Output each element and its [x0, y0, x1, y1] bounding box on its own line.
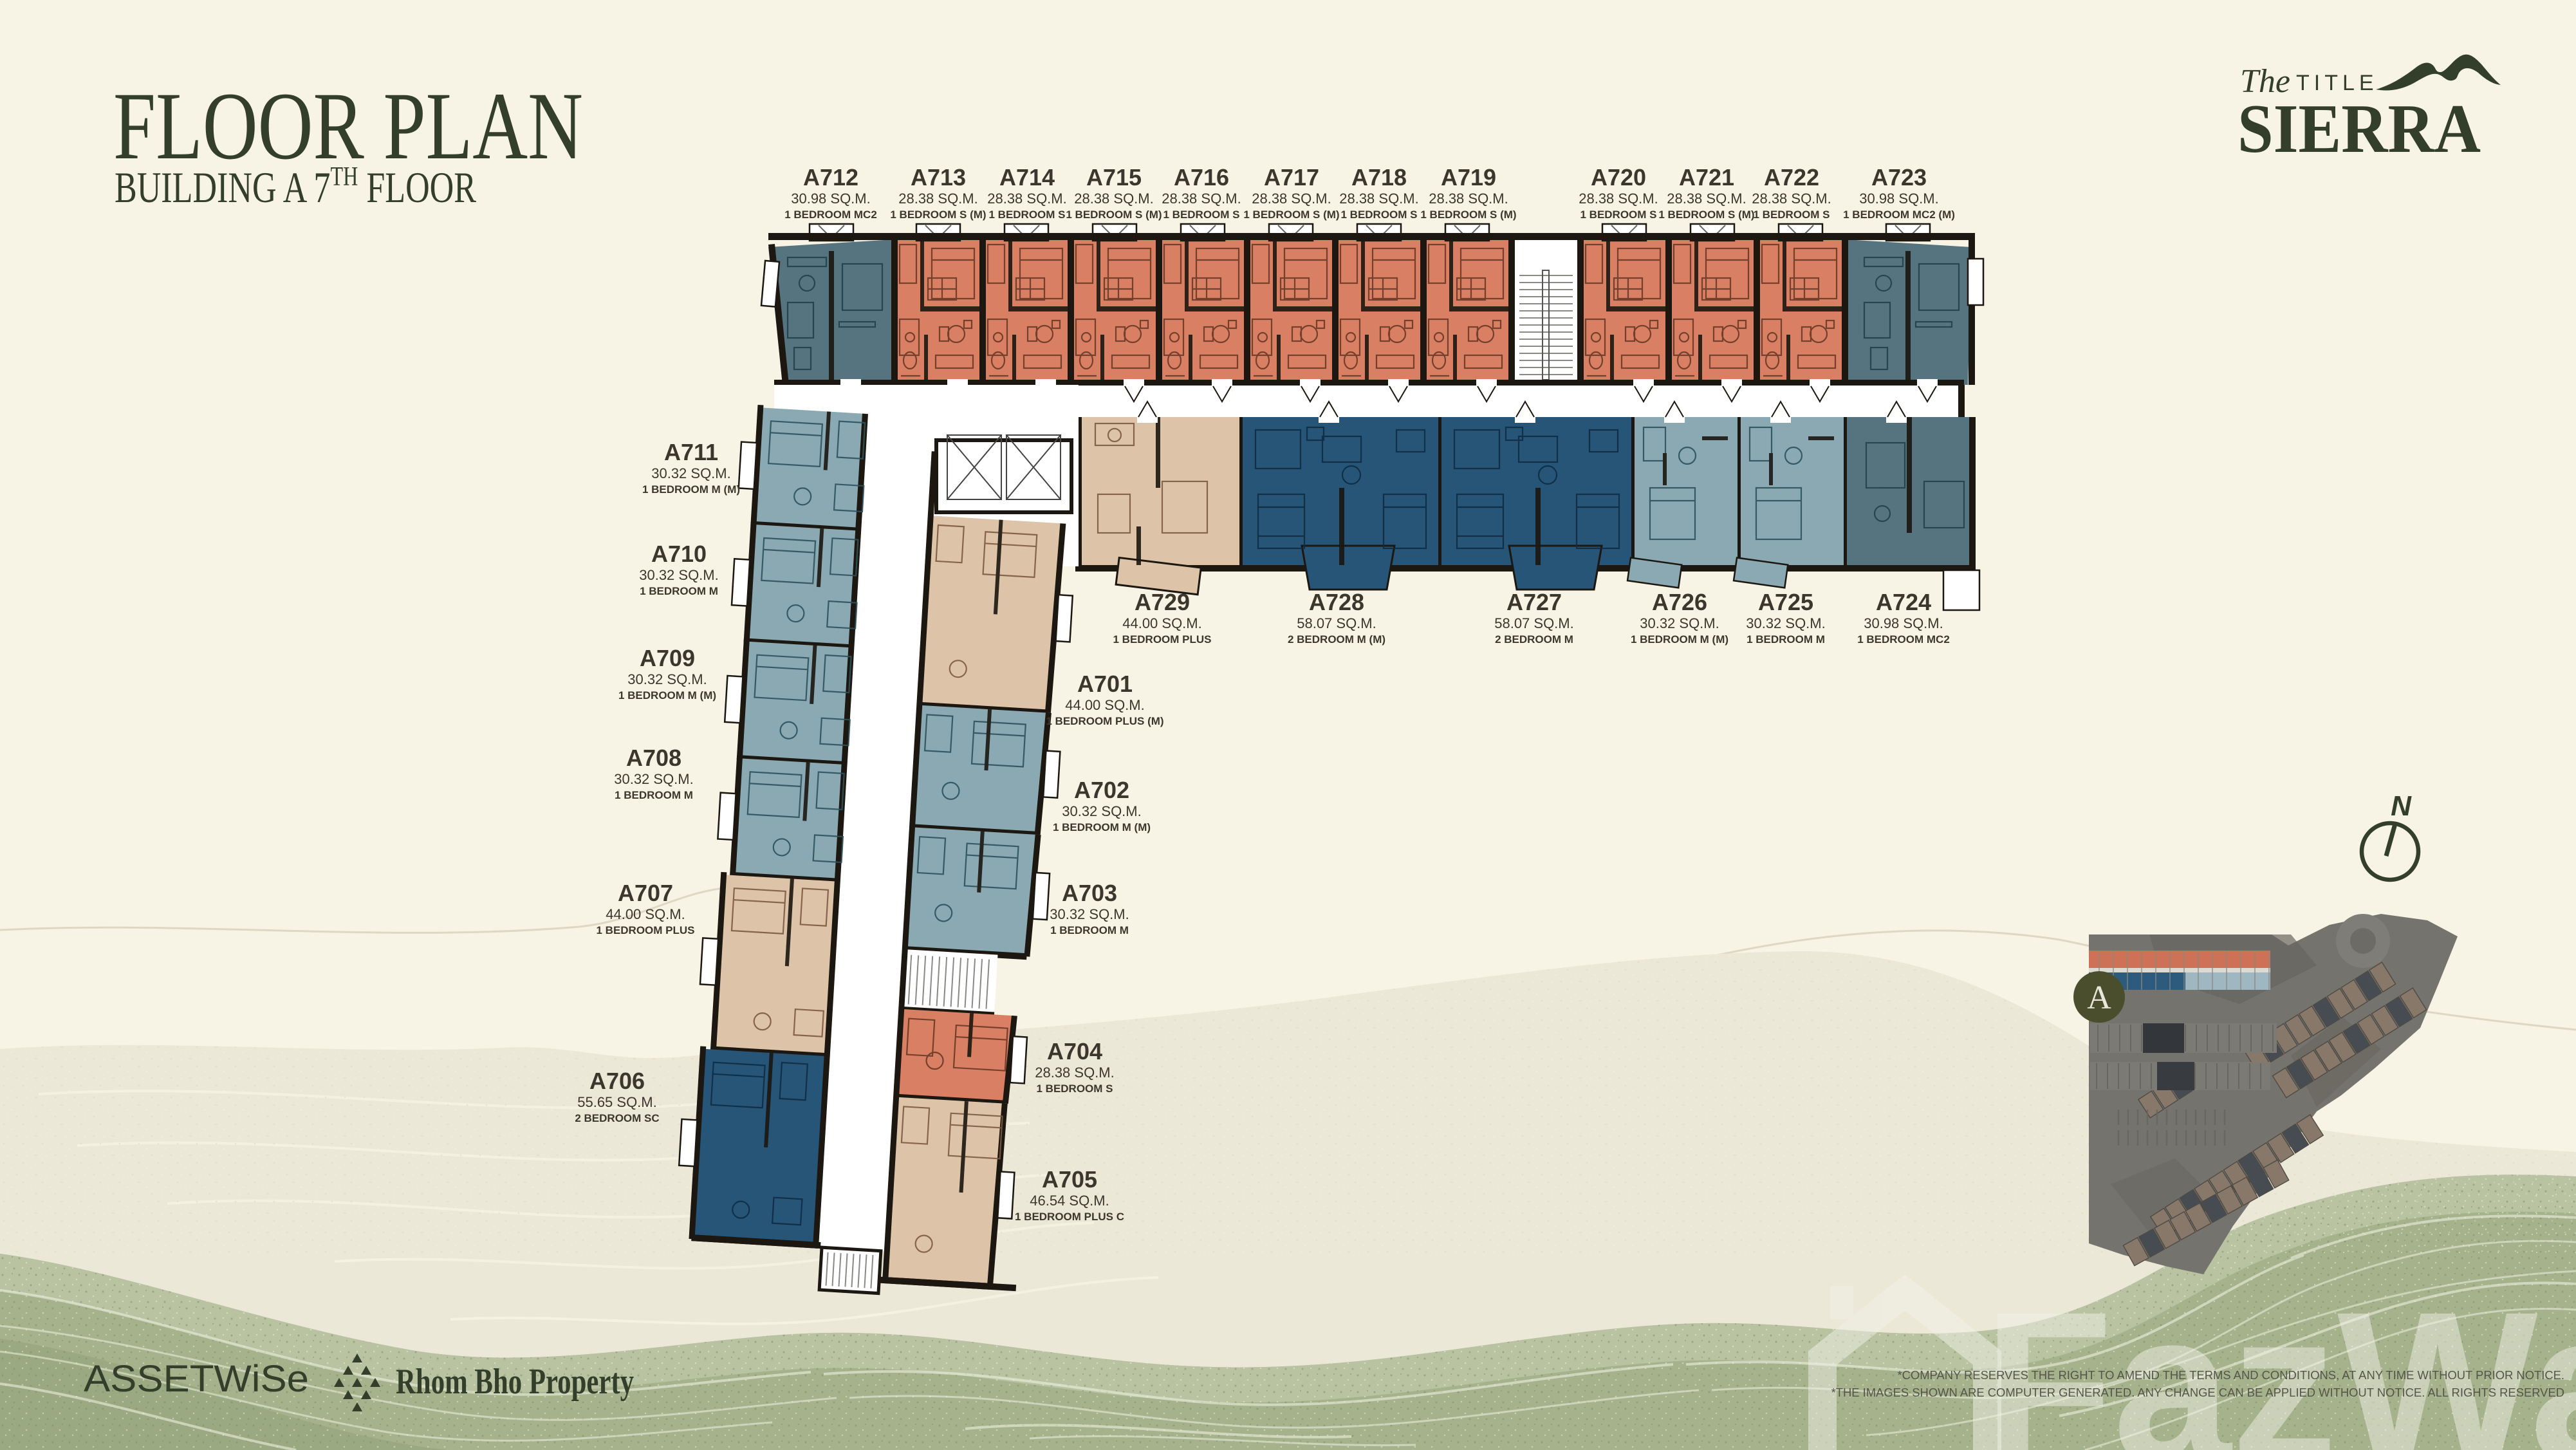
svg-text:28.38 SQ.M.: 28.38 SQ.M.	[1429, 191, 1508, 207]
svg-text:A729: A729	[1135, 589, 1190, 615]
svg-text:1 BEDROOM M: 1 BEDROOM M	[615, 789, 693, 801]
svg-text:1 BEDROOM M (M): 1 BEDROOM M (M)	[618, 689, 716, 702]
svg-text:A722: A722	[1764, 164, 1819, 191]
svg-text:ASSETWiSe: ASSETWiSe	[84, 1358, 309, 1400]
svg-text:A702: A702	[1074, 777, 1129, 803]
svg-text:*THE IMAGES SHOWN ARE COMPUTER: *THE IMAGES SHOWN ARE COMPUTER GENERATED…	[1831, 1386, 2564, 1399]
svg-text:28.38 SQ.M.: 28.38 SQ.M.	[1667, 191, 1747, 207]
svg-text:2 BEDROOM M (M): 2 BEDROOM M (M)	[1288, 633, 1385, 646]
svg-text:1 BEDROOM S: 1 BEDROOM S	[1036, 1083, 1113, 1095]
svg-text:1 BEDROOM S: 1 BEDROOM S	[988, 209, 1065, 221]
svg-text:A718: A718	[1351, 164, 1407, 191]
svg-text:1 BEDROOM S: 1 BEDROOM S	[1580, 209, 1656, 221]
svg-text:1 BEDROOM MC2: 1 BEDROOM MC2	[1857, 633, 1950, 646]
svg-text:A726: A726	[1652, 589, 1707, 615]
svg-text:1 BEDROOM S (M): 1 BEDROOM S (M)	[1066, 209, 1162, 221]
svg-text:30.98 SQ.M.: 30.98 SQ.M.	[791, 191, 871, 207]
svg-text:BUILDING A 7TH FLOOR: BUILDING A 7TH FLOOR	[115, 162, 476, 212]
svg-text:30.32 SQ.M.: 30.32 SQ.M.	[1062, 803, 1142, 819]
svg-text:A728: A728	[1309, 589, 1364, 615]
svg-text:28.38 SQ.M.: 28.38 SQ.M.	[1339, 191, 1419, 207]
svg-text:28.38 SQ.M.: 28.38 SQ.M.	[1035, 1064, 1115, 1081]
svg-text:1 BEDROOM MC2: 1 BEDROOM MC2	[784, 209, 877, 221]
svg-text:A709: A709	[640, 645, 695, 671]
svg-text:A710: A710	[651, 541, 707, 567]
svg-text:44.00 SQ.M.: 44.00 SQ.M.	[606, 906, 685, 922]
svg-text:30.32 SQ.M.: 30.32 SQ.M.	[627, 671, 707, 687]
svg-text:1 BEDROOM M (M): 1 BEDROOM M (M)	[1631, 633, 1728, 646]
svg-text:1 BEDROOM M: 1 BEDROOM M	[640, 585, 718, 597]
svg-text:A701: A701	[1077, 671, 1133, 697]
svg-text:1 BEDROOM S: 1 BEDROOM S	[1163, 209, 1239, 221]
svg-text:A714: A714	[999, 164, 1055, 191]
svg-text:A727: A727	[1506, 589, 1562, 615]
svg-text:2 BEDROOM M: 2 BEDROOM M	[1495, 633, 1573, 646]
svg-text:A716: A716	[1174, 164, 1229, 191]
svg-text:30.32 SQ.M.: 30.32 SQ.M.	[1640, 615, 1719, 631]
svg-text:A717: A717	[1264, 164, 1319, 191]
svg-text:1 BEDROOM MC2 (M): 1 BEDROOM MC2 (M)	[1843, 209, 1955, 221]
svg-text:30.98 SQ.M.: 30.98 SQ.M.	[1864, 615, 1943, 631]
svg-text:A708: A708	[626, 745, 681, 771]
svg-text:1 BEDROOM S (M): 1 BEDROOM S (M)	[1420, 209, 1516, 221]
svg-text:58.07 SQ.M.: 58.07 SQ.M.	[1297, 615, 1376, 631]
svg-text:1 BEDROOM M: 1 BEDROOM M	[1747, 633, 1825, 646]
svg-text:1 BEDROOM PLUS (M): 1 BEDROOM PLUS (M)	[1046, 715, 1163, 727]
svg-text:1 BEDROOM S (M): 1 BEDROOM S (M)	[1658, 209, 1754, 221]
svg-text:A719: A719	[1441, 164, 1496, 191]
svg-text:30.32 SQ.M.: 30.32 SQ.M.	[1746, 615, 1826, 631]
svg-text:28.38 SQ.M.: 28.38 SQ.M.	[1752, 191, 1831, 207]
svg-text:A707: A707	[618, 880, 673, 906]
svg-text:1 BEDROOM PLUS: 1 BEDROOM PLUS	[1113, 633, 1211, 646]
svg-text:SIERRA: SIERRA	[2238, 91, 2481, 167]
svg-text:1 BEDROOM M: 1 BEDROOM M	[1050, 924, 1129, 936]
svg-text:1 BEDROOM M (M): 1 BEDROOM M (M)	[642, 483, 740, 496]
svg-text:Rhom Bho Property: Rhom Bho Property	[396, 1362, 634, 1402]
svg-text:30.32 SQ.M.: 30.32 SQ.M.	[614, 771, 694, 787]
svg-text:30.98 SQ.M.: 30.98 SQ.M.	[1859, 191, 1939, 207]
svg-text:28.38 SQ.M.: 28.38 SQ.M.	[1579, 191, 1658, 207]
svg-text:1 BEDROOM S: 1 BEDROOM S	[1753, 209, 1830, 221]
svg-text:A706: A706	[589, 1068, 645, 1094]
svg-text:44.00 SQ.M.: 44.00 SQ.M.	[1122, 615, 1202, 631]
svg-text:1 BEDROOM S (M): 1 BEDROOM S (M)	[890, 209, 986, 221]
svg-text:28.38 SQ.M.: 28.38 SQ.M.	[987, 191, 1067, 207]
svg-text:46.54 SQ.M.: 46.54 SQ.M.	[1030, 1193, 1109, 1209]
svg-text:1 BEDROOM PLUS C: 1 BEDROOM PLUS C	[1015, 1211, 1124, 1223]
svg-text:1 BEDROOM M (M): 1 BEDROOM M (M)	[1053, 821, 1151, 833]
svg-text:30.32 SQ.M.: 30.32 SQ.M.	[639, 567, 719, 583]
svg-text:28.38 SQ.M.: 28.38 SQ.M.	[898, 191, 978, 207]
svg-text:A725: A725	[1758, 589, 1813, 615]
svg-text:A: A	[2087, 980, 2111, 1016]
svg-text:44.00 SQ.M.: 44.00 SQ.M.	[1065, 697, 1145, 713]
svg-text:A704: A704	[1047, 1038, 1102, 1064]
svg-text:N: N	[2391, 790, 2412, 822]
svg-text:A712: A712	[803, 164, 858, 191]
svg-text:A721: A721	[1679, 164, 1734, 191]
svg-text:*COMPANY RESERVES THE RIGHT TO: *COMPANY RESERVES THE RIGHT TO AMEND THE…	[1897, 1368, 2564, 1382]
svg-text:55.65 SQ.M.: 55.65 SQ.M.	[577, 1094, 657, 1110]
svg-text:A724: A724	[1876, 589, 1931, 615]
svg-text:A720: A720	[1591, 164, 1646, 191]
svg-text:1 BEDROOM PLUS: 1 BEDROOM PLUS	[596, 924, 694, 936]
svg-text:1 BEDROOM S: 1 BEDROOM S	[1340, 209, 1417, 221]
svg-text:1 BEDROOM S (M): 1 BEDROOM S (M)	[1243, 209, 1339, 221]
svg-text:A705: A705	[1042, 1166, 1097, 1193]
svg-text:28.38 SQ.M.: 28.38 SQ.M.	[1162, 191, 1241, 207]
svg-text:30.32 SQ.M.: 30.32 SQ.M.	[1050, 906, 1129, 922]
svg-text:A713: A713	[911, 164, 966, 191]
svg-text:28.38 SQ.M.: 28.38 SQ.M.	[1074, 191, 1154, 207]
svg-text:A711: A711	[664, 439, 718, 465]
svg-text:A723: A723	[1871, 164, 1927, 191]
svg-text:A703: A703	[1062, 880, 1117, 906]
svg-text:2 BEDROOM SC: 2 BEDROOM SC	[575, 1112, 659, 1124]
svg-text:30.32 SQ.M.: 30.32 SQ.M.	[651, 465, 731, 481]
svg-text:58.07 SQ.M.: 58.07 SQ.M.	[1494, 615, 1574, 631]
svg-text:28.38 SQ.M.: 28.38 SQ.M.	[1252, 191, 1331, 207]
svg-text:A715: A715	[1086, 164, 1142, 191]
svg-text:FazWaz: FazWaz	[1983, 1267, 2576, 1450]
